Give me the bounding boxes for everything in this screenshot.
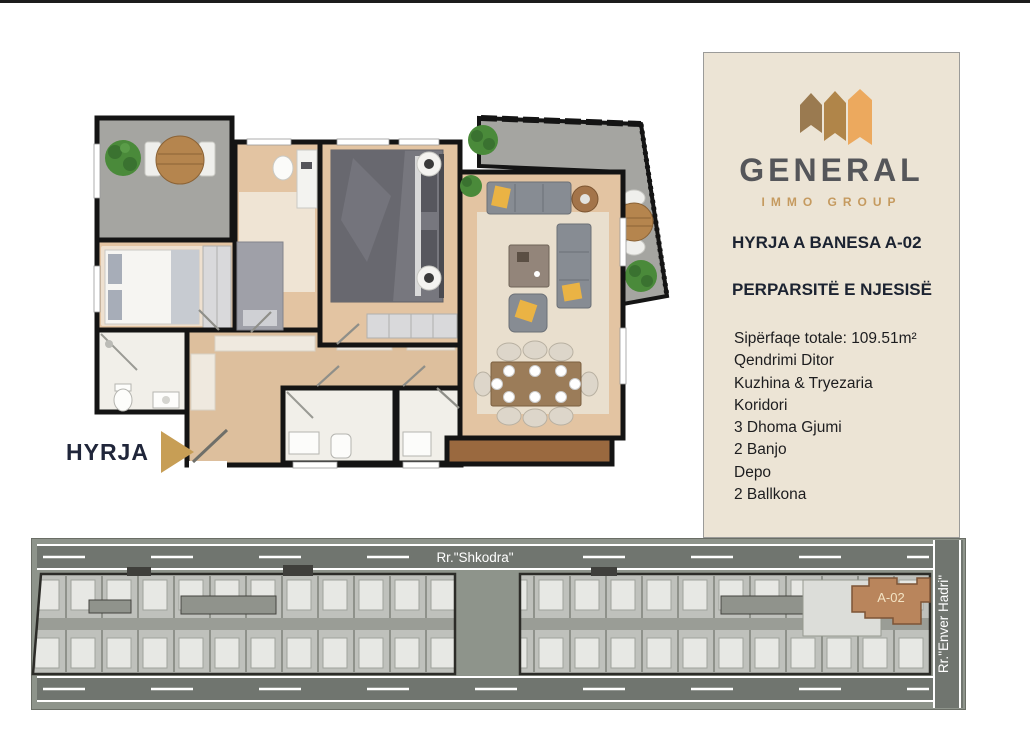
feature-item: 2 Ballkona: [734, 484, 959, 506]
brand-subtitle: IMMO GROUP: [704, 195, 959, 209]
bedroom-2-small: [235, 142, 320, 332]
wardrobe: [203, 246, 231, 328]
master-bedroom: [320, 142, 460, 345]
brand-logo: GENERAL IMMO GROUP: [704, 87, 959, 209]
building-left: [33, 565, 455, 674]
single-bed: [237, 242, 283, 330]
building-right: A-02: [520, 567, 930, 674]
flyer-page: { "floor_plan": { "entrance_label": "HYR…: [0, 0, 1030, 733]
double-bed: [105, 250, 199, 324]
feature-item: 3 Dhoma Gjumi: [734, 417, 959, 439]
feature-item: 2 Banjo: [734, 439, 959, 461]
sink: [153, 392, 179, 408]
entrance-arrow-icon: [161, 431, 194, 473]
hall-cabinet: [191, 354, 215, 410]
bedroom-1: [97, 240, 235, 332]
street-right-label: Rr."Enver Hadri": [936, 575, 951, 673]
site-plan: Rr."Shkodra" Rr."Enver Hadri" A-02: [31, 538, 966, 710]
top-border-bar: [0, 0, 1030, 3]
brand-name: GENERAL: [704, 152, 959, 189]
sink: [289, 432, 319, 454]
wardrobe: [367, 314, 457, 338]
hall-wardrobe: [215, 336, 315, 351]
toilet: [331, 434, 351, 458]
toilet: [114, 384, 132, 411]
feature-item: Kuzhina & Tryezaria: [734, 373, 959, 395]
brand-logo-icon: [788, 87, 876, 145]
entrance-callout: HYRJA: [66, 431, 194, 473]
sofa: [487, 182, 571, 214]
bathroom-1: [97, 330, 187, 412]
balcony-bottom: [447, 438, 612, 464]
side-table: [572, 186, 598, 212]
balcony-top-left: [97, 118, 232, 240]
street-top-label: Rr."Shkodra": [436, 550, 513, 565]
feature-item: Depo: [734, 462, 959, 484]
panel-title: HYRJA A BANESA A-02: [732, 233, 959, 253]
panel-subtitle: PERPARSITË E NJESISË: [732, 280, 959, 300]
armchair: [509, 294, 547, 332]
living-room: [460, 172, 623, 438]
info-panel: GENERAL IMMO GROUP HYRJA A BANESA A-02 P…: [703, 52, 960, 538]
entrance-label: HYRJA: [66, 439, 149, 466]
coffee-table: [509, 245, 549, 287]
feature-list: Sipërfaqe totale: 109.51m² Qendrimi Dito…: [734, 328, 959, 506]
street-right: Rr."Enver Hadri": [933, 540, 963, 708]
street-bottom: [37, 676, 933, 702]
balcony-plant: [105, 140, 141, 176]
feature-item: Qendrimi Ditor: [734, 350, 959, 372]
feature-item: Koridori: [734, 395, 959, 417]
apartment-floor-plan: [85, 100, 675, 485]
unit-a02-label: A-02: [877, 590, 904, 605]
street-top: Rr."Shkodra": [37, 544, 933, 570]
indoor-plant: [460, 175, 482, 197]
feature-item: Sipërfaqe totale: 109.51m²: [734, 328, 959, 350]
sofa: [557, 224, 591, 308]
